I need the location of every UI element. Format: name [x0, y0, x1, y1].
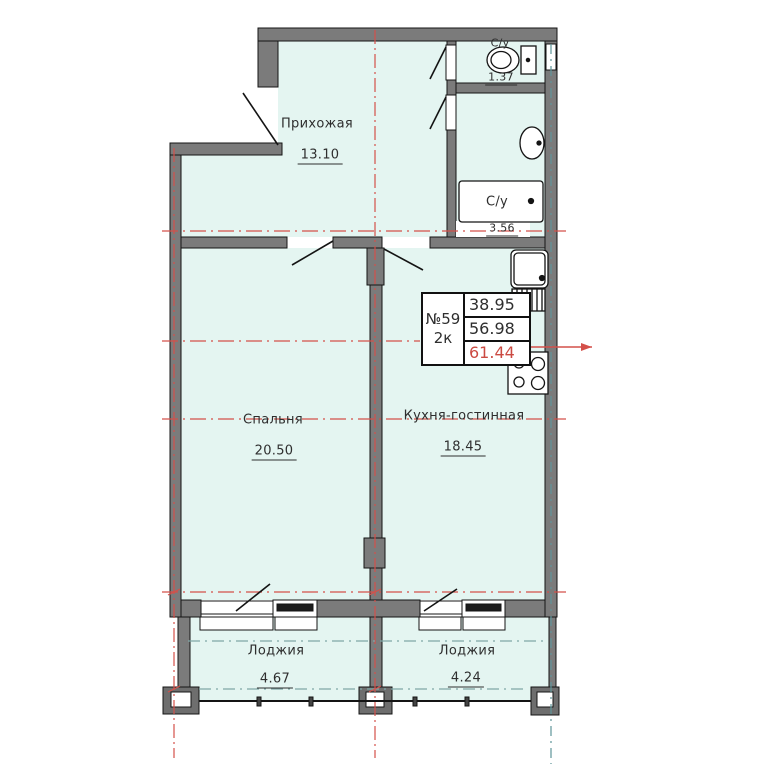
unit-area-usable: 56.98: [465, 318, 529, 342]
unit-area-total: 61.44: [465, 342, 529, 364]
room-label-hallway: Прихожая: [281, 117, 353, 132]
room-label-bathroom: С/у: [486, 195, 508, 210]
room-area-bathroom: 3.56: [486, 222, 518, 237]
room-area-kitchen: 18.45: [441, 440, 486, 457]
unit-area-living: 38.95: [465, 294, 529, 318]
room-area-loggia-right: 4.24: [448, 671, 484, 688]
unit-info-box: №59 2к 38.95 56.98 61.44: [421, 292, 531, 366]
unit-areas-cell: 38.95 56.98 61.44: [465, 294, 529, 364]
room-area-loggia-left: 4.67: [257, 672, 293, 689]
floorplan-canvas: [0, 0, 777, 777]
room-label-loggia-left: Лоджия: [248, 644, 305, 659]
unit-type: 2к: [434, 329, 453, 348]
unit-number: №59: [426, 310, 461, 329]
room-area-wc: 1.37: [485, 71, 517, 86]
room-label-kitchen: Кухня-гостинная: [404, 409, 525, 424]
wash-basin-icon: [520, 127, 544, 159]
room-area-bedroom: 20.50: [252, 444, 297, 461]
unit-number-cell: №59 2к: [423, 294, 465, 364]
room-label-bedroom: Спальня: [243, 413, 303, 428]
room-area-hallway: 13.10: [298, 148, 343, 165]
room-label-wc: С/у: [491, 37, 510, 50]
room-label-loggia-right: Лоджия: [439, 644, 496, 659]
floor-plan: Прихожая 13.10 Спальня 20.50 Кухня-гости…: [0, 0, 777, 777]
